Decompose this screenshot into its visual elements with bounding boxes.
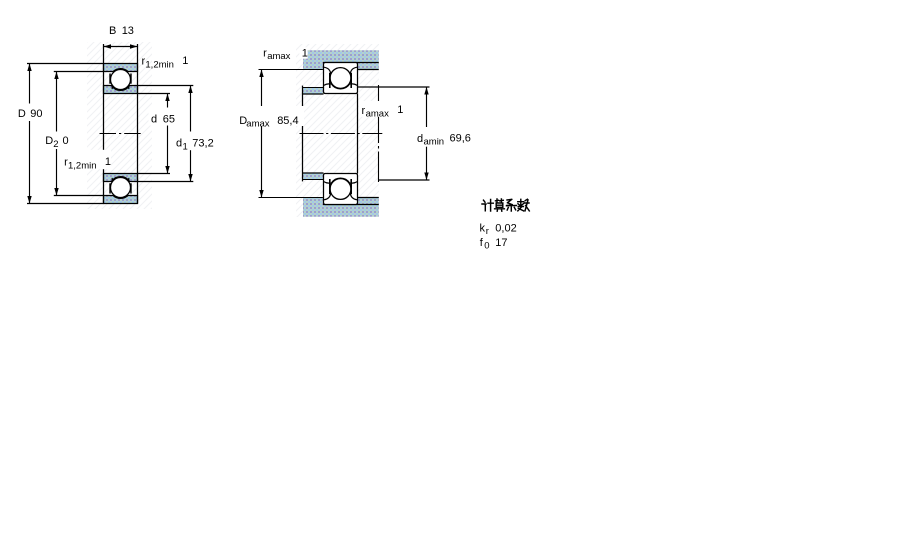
svg-text:0: 0	[63, 135, 69, 147]
svg-text:1,2min: 1,2min	[145, 59, 174, 70]
svg-text:85,4: 85,4	[277, 115, 298, 127]
svg-text:amax: amax	[267, 51, 290, 62]
svg-text:65: 65	[163, 114, 175, 126]
svg-text:r: r	[486, 226, 489, 237]
svg-text:1: 1	[183, 141, 188, 152]
svg-text:17: 17	[495, 237, 507, 249]
svg-text:amax: amax	[246, 118, 269, 129]
svg-text:90: 90	[30, 108, 42, 120]
svg-text:73,2: 73,2	[192, 138, 213, 150]
svg-text:B: B	[109, 25, 116, 37]
svg-text:1: 1	[105, 156, 111, 168]
svg-text:amax: amax	[366, 109, 389, 120]
svg-text:69,6: 69,6	[450, 132, 471, 144]
svg-text:k: k	[480, 222, 486, 234]
svg-text:2: 2	[53, 139, 58, 150]
svg-text:1: 1	[302, 47, 308, 59]
svg-text:0: 0	[484, 241, 489, 252]
svg-text:0,02: 0,02	[495, 222, 516, 234]
svg-text:d: d	[417, 133, 423, 145]
svg-text:D: D	[45, 135, 53, 147]
svg-text:1: 1	[182, 55, 188, 67]
svg-text:d: d	[176, 137, 182, 149]
svg-text:d: d	[151, 114, 157, 126]
svg-text:1,2min: 1,2min	[68, 161, 97, 172]
svg-text:1: 1	[397, 104, 403, 116]
svg-text:amin: amin	[424, 137, 445, 148]
svg-text:D: D	[18, 108, 26, 120]
svg-text:13: 13	[122, 25, 134, 37]
